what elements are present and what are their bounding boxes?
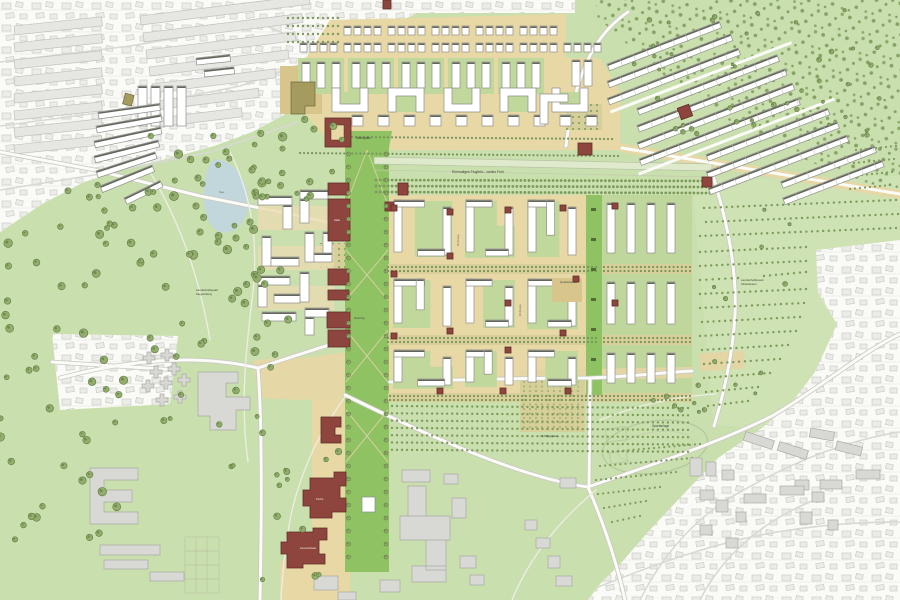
map-label-gruenzug: Grünzug: [354, 316, 365, 320]
map-label-kirche: Kirche: [316, 497, 324, 501]
map-label-wohnweg-1: Wohnweg: [456, 234, 460, 246]
map-label-see: See: [219, 190, 225, 194]
map-label-quartiersplatz: Quartiersplatz: [560, 280, 578, 284]
map-label-halle: Halle: [334, 218, 340, 222]
courtyard-housing-cluster: [258, 190, 334, 335]
map-label-obstgarten: Im Obstgarten: [540, 434, 558, 438]
map-label-flugfeld: Ehemaliges Flugfeld – weites Feld: [452, 170, 504, 174]
map-label-marktplatz: Marktplatz: [356, 136, 371, 140]
masterplan-map: Ehemaliges Flugfeld – weites FeldMarktpl…: [0, 0, 900, 600]
map-label-gemeindehaus: Gemeindehaus: [300, 547, 317, 550]
map-label-landschaftspark-2: Siegelsberg: [196, 292, 212, 296]
map-label-landschaftsraum-2: Obstwiesen: [741, 282, 757, 286]
masterplan-svg: Ehemaliges Flugfeld – weites FeldMarktpl…: [0, 0, 900, 600]
map-label-sportanlage: Sportanlage: [652, 424, 669, 428]
map-label-wohnweg-2: Wohnweg: [518, 304, 522, 316]
